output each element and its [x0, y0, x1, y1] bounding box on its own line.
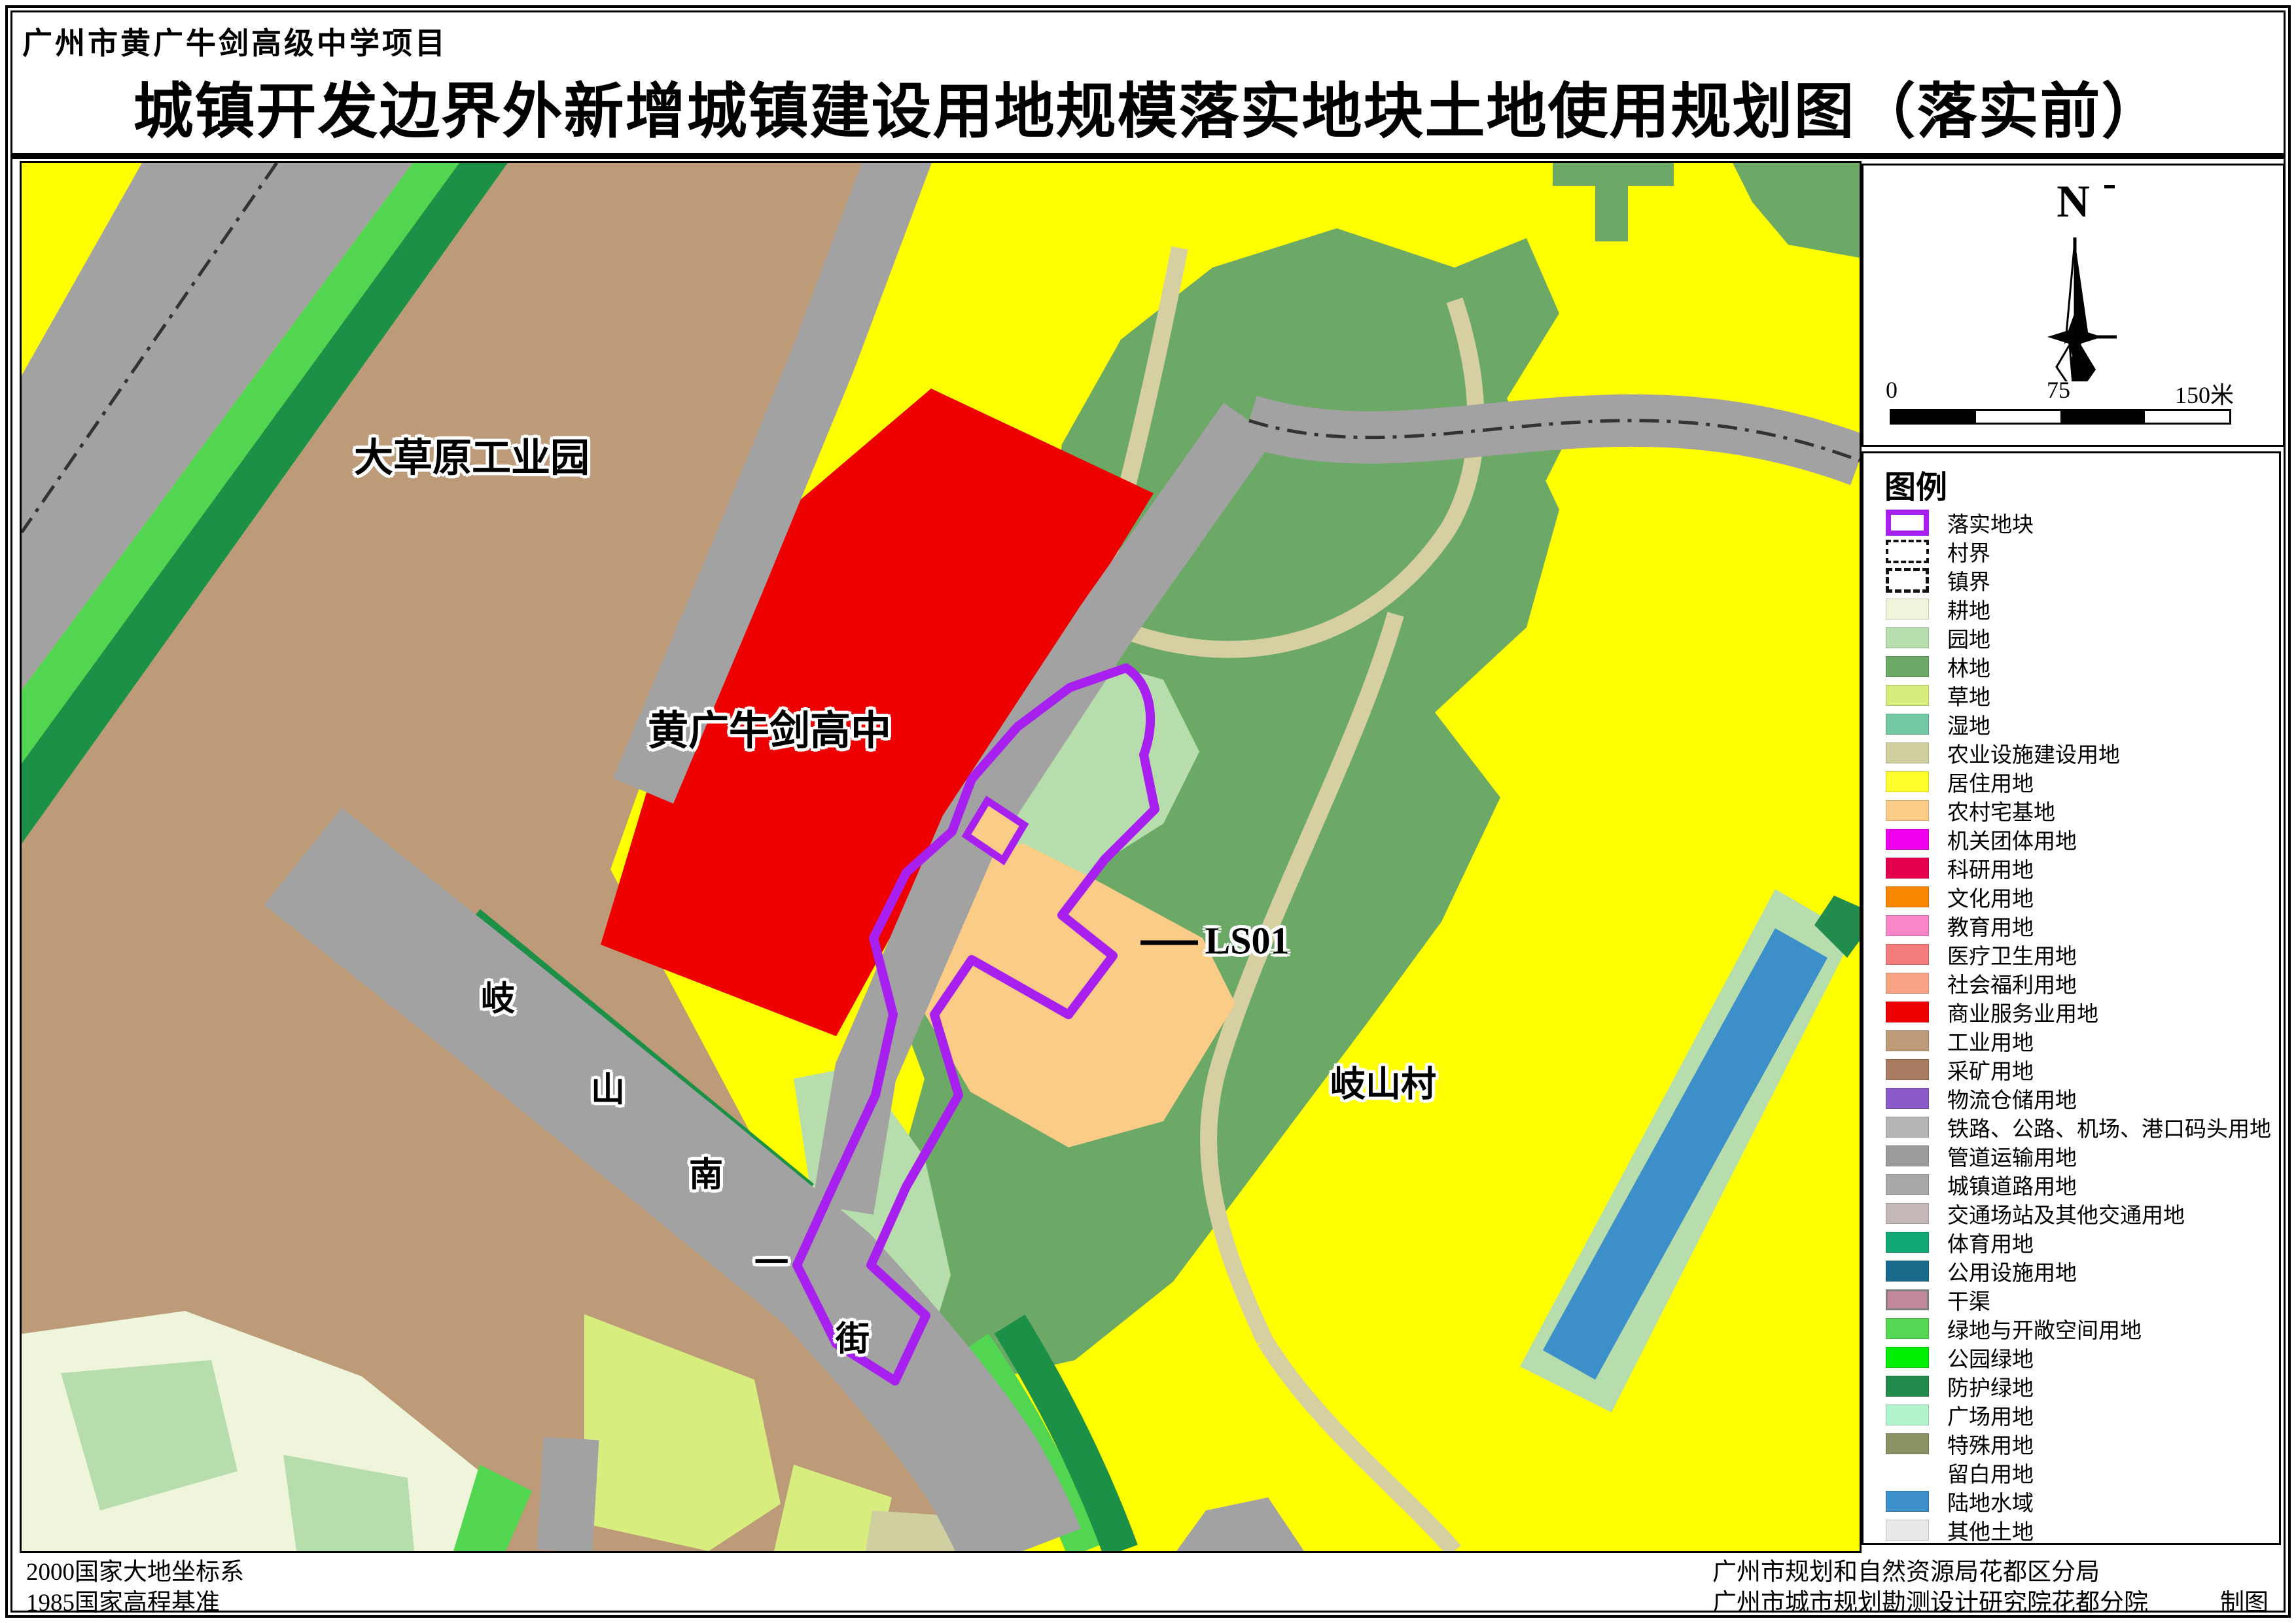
legend-swatch-fill: [1886, 1002, 1929, 1022]
legend-swatch-fill: [1886, 685, 1929, 706]
legend-swatch-fill: [1886, 1491, 1929, 1512]
project-title: 广州市黄广牛剑高级中学项目: [22, 20, 448, 63]
legend-label: 管道运输用地: [1947, 1140, 2077, 1172]
legend-item: 采矿用地: [1863, 1055, 2279, 1084]
agency-line: 广州市规划和自然资源局花都区分局: [1712, 1557, 2269, 1588]
legend-item: 城镇道路用地: [1863, 1170, 2279, 1199]
agency-name: 广州市城市规划勘测设计研究院花都分院: [1712, 1590, 2148, 1616]
legend-item: 广场用地: [1863, 1401, 2279, 1429]
legend-swatch-fill: [1886, 1433, 1929, 1454]
street-name-char: 街: [836, 1312, 870, 1361]
legend-label: 村界: [1947, 536, 1990, 567]
legend-swatch-fill: [1886, 714, 1929, 735]
legend-label: 工业用地: [1947, 1025, 2034, 1056]
legend-label: 社会福利用地: [1947, 968, 2077, 999]
legend-swatch-fill: [1886, 771, 1929, 792]
legend-label: 留白用地: [1947, 1457, 2034, 1488]
legend-item: 落实地块: [1863, 508, 2279, 537]
title-divider: [10, 153, 2286, 159]
street-name-char: 一: [754, 1236, 788, 1285]
legend-panel: 图例 落实地块村界镇界耕地园地林地草地湿地农业设施建设用地居住用地农村宅基地机关…: [1862, 451, 2281, 1545]
datum-line: 1985国家高程基准: [26, 1588, 244, 1618]
legend-swatch-fill: [1886, 915, 1929, 936]
legend-swatch-fill: [1886, 1232, 1929, 1253]
label-plot-code: LS01: [1205, 919, 1290, 963]
legend-swatch-dashed: [1886, 568, 1929, 593]
legend-swatch-fill: [1886, 944, 1929, 965]
legend-item: 陆地水域: [1863, 1487, 2279, 1516]
legend-label: 草地: [1947, 680, 1990, 711]
legend-item: 农村宅基地: [1863, 796, 2279, 825]
legend-label: 干渠: [1947, 1284, 1990, 1316]
legend-item: 工业用地: [1863, 1026, 2279, 1055]
legend-swatch-fill: [1886, 1203, 1929, 1224]
legend-label: 商业服务业用地: [1947, 996, 2098, 1028]
legend-label: 落实地块: [1947, 507, 2034, 538]
legend-items: 落实地块村界镇界耕地园地林地草地湿地农业设施建设用地居住用地农村宅基地机关团体用…: [1863, 508, 2279, 1544]
cartography-credit: 制图: [2220, 1590, 2269, 1616]
legend-label: 绿地与开敞空间用地: [1947, 1313, 2142, 1344]
legend-item: 园地: [1863, 623, 2279, 652]
compass-rose-icon: [2016, 231, 2134, 381]
legend-item: 绿地与开敞空间用地: [1863, 1314, 2279, 1343]
legend-swatch-fill: [1886, 1030, 1929, 1051]
road-stub-south: [565, 1439, 571, 1551]
legend-item: 湿地: [1863, 710, 2279, 739]
legend-swatch-fill: [1886, 627, 1929, 648]
legend-swatch-fill: [1886, 1347, 1929, 1368]
street-name-char: 岐: [481, 971, 515, 1021]
scale-tick-75: 75: [2047, 376, 2070, 404]
legend-label: 农业设施建设用地: [1947, 737, 2120, 769]
legend-label: 公用设施用地: [1947, 1255, 2077, 1287]
legend-swatch-fill: [1886, 800, 1929, 821]
legend-label: 机关团体用地: [1947, 824, 2077, 855]
scale-tick-0: 0: [1886, 376, 1898, 404]
planning-map-page: 广州市黄广牛剑高级中学项目 城镇开发边界外新增城镇建设用地规模落实地块土地使用规…: [0, 0, 2296, 1623]
legend-label: 交通场站及其他交通用地: [1947, 1198, 2185, 1229]
legend-swatch-fill: [1886, 1405, 1929, 1425]
legend-item: 其他土地: [1863, 1516, 2279, 1544]
legend-item: 管道运输用地: [1863, 1142, 2279, 1170]
legend-label: 特殊用地: [1947, 1428, 2034, 1459]
scale-labels: 0 75 150米: [1890, 376, 2227, 402]
legend-swatch-fill: [1886, 973, 1929, 994]
north-tick-mark: [2104, 185, 2115, 188]
legend-item: 科研用地: [1863, 854, 2279, 882]
legend-swatch-fill: [1886, 656, 1929, 677]
legend-item: 防护绿地: [1863, 1372, 2279, 1401]
legend-label: 林地: [1947, 651, 1990, 682]
legend-label: 其他土地: [1947, 1514, 2034, 1546]
legend-swatch-fill: [1886, 1261, 1929, 1282]
legend-swatch-fill: [1886, 1117, 1929, 1138]
legend-item: 体育用地: [1863, 1228, 2279, 1257]
legend-label: 教育用地: [1947, 910, 2034, 941]
legend-header: 图例: [1884, 461, 1947, 507]
legend-swatch-fill: [1886, 1520, 1929, 1541]
label-village: 岐山村: [1330, 1055, 1436, 1107]
legend-item: 公用设施用地: [1863, 1257, 2279, 1285]
legend-item: 林地: [1863, 652, 2279, 681]
legend-item: 耕地: [1863, 595, 2279, 623]
legend-label: 文化用地: [1947, 881, 2034, 913]
legend-item: 社会福利用地: [1863, 969, 2279, 998]
legend-label: 医疗卫生用地: [1947, 939, 2077, 970]
legend-label: 居住用地: [1947, 766, 2034, 797]
legend-swatch-fill: [1886, 1174, 1929, 1195]
legend-swatch-dashdot: [1886, 540, 1929, 563]
legend-label: 城镇道路用地: [1947, 1169, 2077, 1200]
legend-swatch-blank: [1886, 1462, 1929, 1483]
legend-label: 园地: [1947, 622, 1990, 654]
legend-label: 耕地: [1947, 593, 1990, 625]
legend-label: 物流仓储用地: [1947, 1083, 2077, 1114]
legend-item: 商业服务业用地: [1863, 998, 2279, 1026]
legend-item: 铁路、公路、机场、港口码头用地: [1863, 1113, 2279, 1142]
legend-label: 湿地: [1947, 708, 1990, 740]
north-label: N: [1863, 176, 2283, 228]
legend-label: 科研用地: [1947, 852, 2034, 884]
page-title: 城镇开发边界外新增城镇建设用地规模落实地块土地使用规划图（落实前）: [13, 63, 2283, 150]
legend-swatch-fill: [1886, 599, 1929, 620]
legend-item: 物流仓储用地: [1863, 1084, 2279, 1113]
street-name-char: 山: [591, 1062, 625, 1111]
legend-swatch-fill: [1886, 1376, 1929, 1397]
legend-item: 居住用地: [1863, 767, 2279, 796]
legend-swatch-fill: [1886, 886, 1929, 907]
legend-item: 文化用地: [1863, 882, 2279, 911]
legend-swatch-fill: [1886, 829, 1929, 850]
north-scale-panel: N 0 75 150米: [1862, 164, 2285, 447]
label-school: 黄广牛剑高中: [648, 697, 891, 756]
legend-swatch-fill: [1886, 742, 1929, 763]
datum-line: 2000国家大地坐标系: [26, 1557, 244, 1588]
legend-label: 采矿用地: [1947, 1054, 2034, 1085]
street-name-char: 南: [689, 1147, 723, 1196]
landuse-map-svg: [22, 163, 1860, 1551]
legend-swatch-fill: [1886, 858, 1929, 879]
legend-label: 铁路、公路、机场、港口码头用地: [1947, 1111, 2271, 1143]
agency-line-2: 广州市城市规划勘测设计研究院花都分院制图: [1712, 1588, 2269, 1618]
map-canvas: [20, 161, 1862, 1553]
legend-label: 广场用地: [1947, 1399, 2034, 1431]
legend-item: 镇界: [1863, 566, 2279, 595]
datum-notes: 2000国家大地坐标系 1985国家高程基准: [26, 1557, 244, 1618]
legend-label: 镇界: [1947, 565, 1990, 596]
legend-swatch-fill: [1886, 1145, 1929, 1166]
legend-item: 教育用地: [1863, 911, 2279, 940]
legend-item: 干渠: [1863, 1285, 2279, 1314]
legend-item: 机关团体用地: [1863, 825, 2279, 854]
scale-tick-150: 150米: [2175, 376, 2234, 410]
scale-bar: [1890, 409, 2231, 425]
legend-swatch-fill: [1886, 1088, 1929, 1109]
agency-credits: 广州市规划和自然资源局花都区分局 广州市城市规划勘测设计研究院花都分院制图: [1712, 1557, 2269, 1618]
legend-swatch-fill: [1886, 1318, 1929, 1339]
legend-item: 农业设施建设用地: [1863, 739, 2279, 767]
legend-item: 留白用地: [1863, 1458, 2279, 1487]
legend-item: 交通场站及其他交通用地: [1863, 1199, 2279, 1228]
legend-label: 公园绿地: [1947, 1342, 2034, 1373]
legend-label: 体育用地: [1947, 1227, 2034, 1258]
legend-item: 公园绿地: [1863, 1343, 2279, 1372]
legend-swatch-fill-border: [1886, 1289, 1929, 1310]
legend-label: 防护绿地: [1947, 1370, 2034, 1402]
legend-label: 农村宅基地: [1947, 795, 2055, 826]
legend-item: 医疗卫生用地: [1863, 940, 2279, 969]
label-industrial-park: 大草原工业园: [354, 427, 590, 483]
legend-item: 草地: [1863, 681, 2279, 710]
legend-swatch-fill: [1886, 1059, 1929, 1080]
legend-item: 特殊用地: [1863, 1429, 2279, 1458]
legend-label: 陆地水域: [1947, 1486, 2034, 1517]
legend-item: 村界: [1863, 537, 2279, 566]
legend-swatch-outline: [1886, 510, 1929, 536]
